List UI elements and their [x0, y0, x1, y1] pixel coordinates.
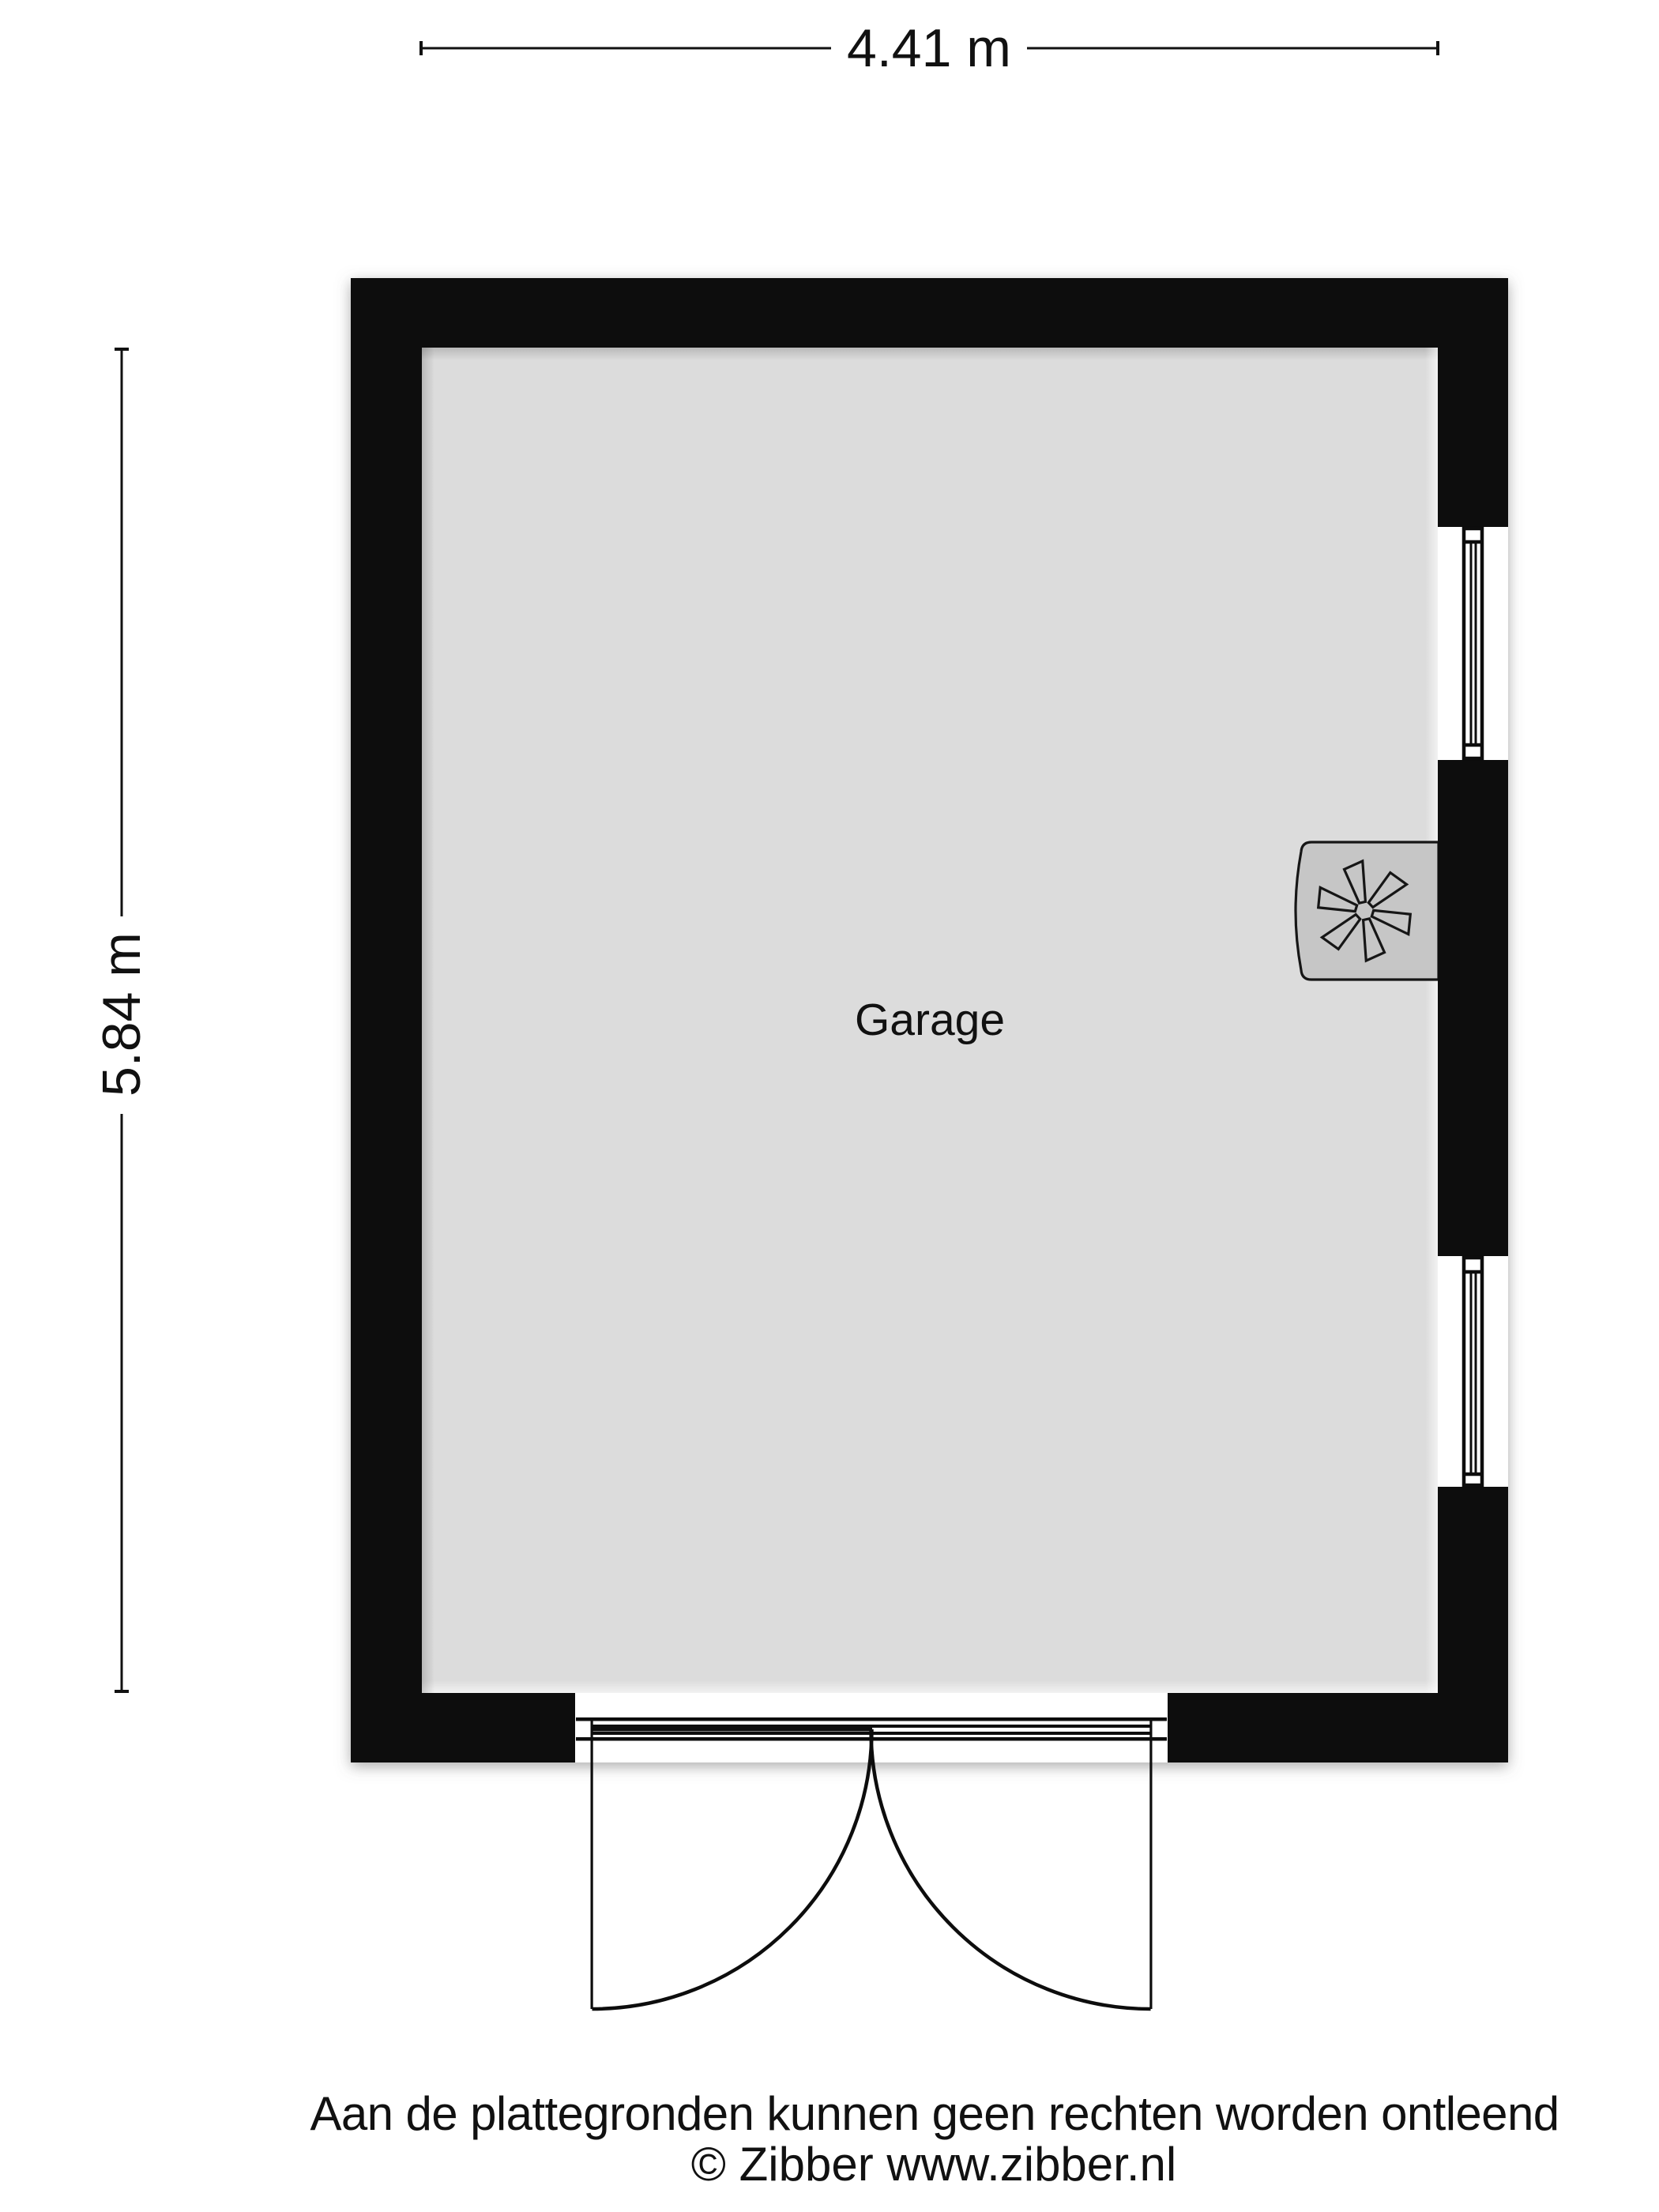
svg-text:© Zibber www.zibber.nl: © Zibber www.zibber.nl	[691, 2138, 1176, 2191]
svg-text:Aan de plattegronden kunnen ge: Aan de plattegronden kunnen geen rechten…	[310, 2087, 1559, 2140]
svg-text:Garage: Garage	[855, 995, 1005, 1045]
svg-text:4.41 m: 4.41 m	[847, 18, 1011, 78]
svg-text:5.84 m: 5.84 m	[92, 932, 152, 1097]
